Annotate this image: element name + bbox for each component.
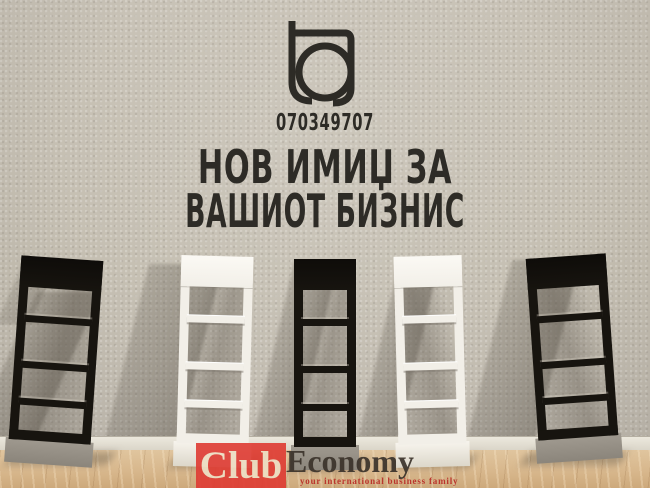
rack-header-panel [526, 253, 608, 290]
rack-header-panel [19, 255, 103, 292]
watermark-tagline: your international business family [300, 476, 458, 486]
club-logo-box: Club [196, 443, 286, 488]
rack-interior-shadow [185, 283, 245, 436]
phone-number: 070349707 [117, 111, 533, 135]
rack-shelf [187, 315, 245, 324]
ad-poster: 070349707 НОВ ИМИЏ ЗА ВАШИОТ БИЗНИС [0, 0, 650, 488]
rack-interior-shadow [17, 284, 93, 436]
display-rack-4-white [394, 255, 467, 445]
rack-shelf [403, 362, 457, 370]
economy-label: Economy [286, 445, 414, 477]
rack-shelf [301, 319, 349, 326]
display-rack-5-black [526, 253, 619, 440]
rack-shelf [185, 362, 243, 371]
rack-shelf [301, 366, 349, 373]
tq-monogram-icon [283, 20, 365, 112]
rack-shelf [402, 315, 456, 323]
headline: НОВ ИМИЏ ЗА ВАШИОТ БИЗНИС [0, 145, 650, 232]
rack-interior-shadow [302, 287, 348, 439]
club-label: Club [200, 443, 282, 488]
rack-header-panel [181, 255, 254, 288]
rack-shelf [301, 404, 349, 411]
rack-shelf [184, 400, 242, 409]
rack-header-panel [394, 255, 463, 288]
display-rack-1-black [9, 255, 104, 444]
rack-interior-shadow [402, 283, 458, 436]
display-rack-2-white [177, 255, 254, 445]
rack-header-panel [294, 259, 356, 290]
rack-shelf [404, 400, 458, 408]
headline-line-2: ВАШИОТ БИЗНИС [137, 190, 514, 232]
display-rack-3-black [294, 259, 356, 447]
